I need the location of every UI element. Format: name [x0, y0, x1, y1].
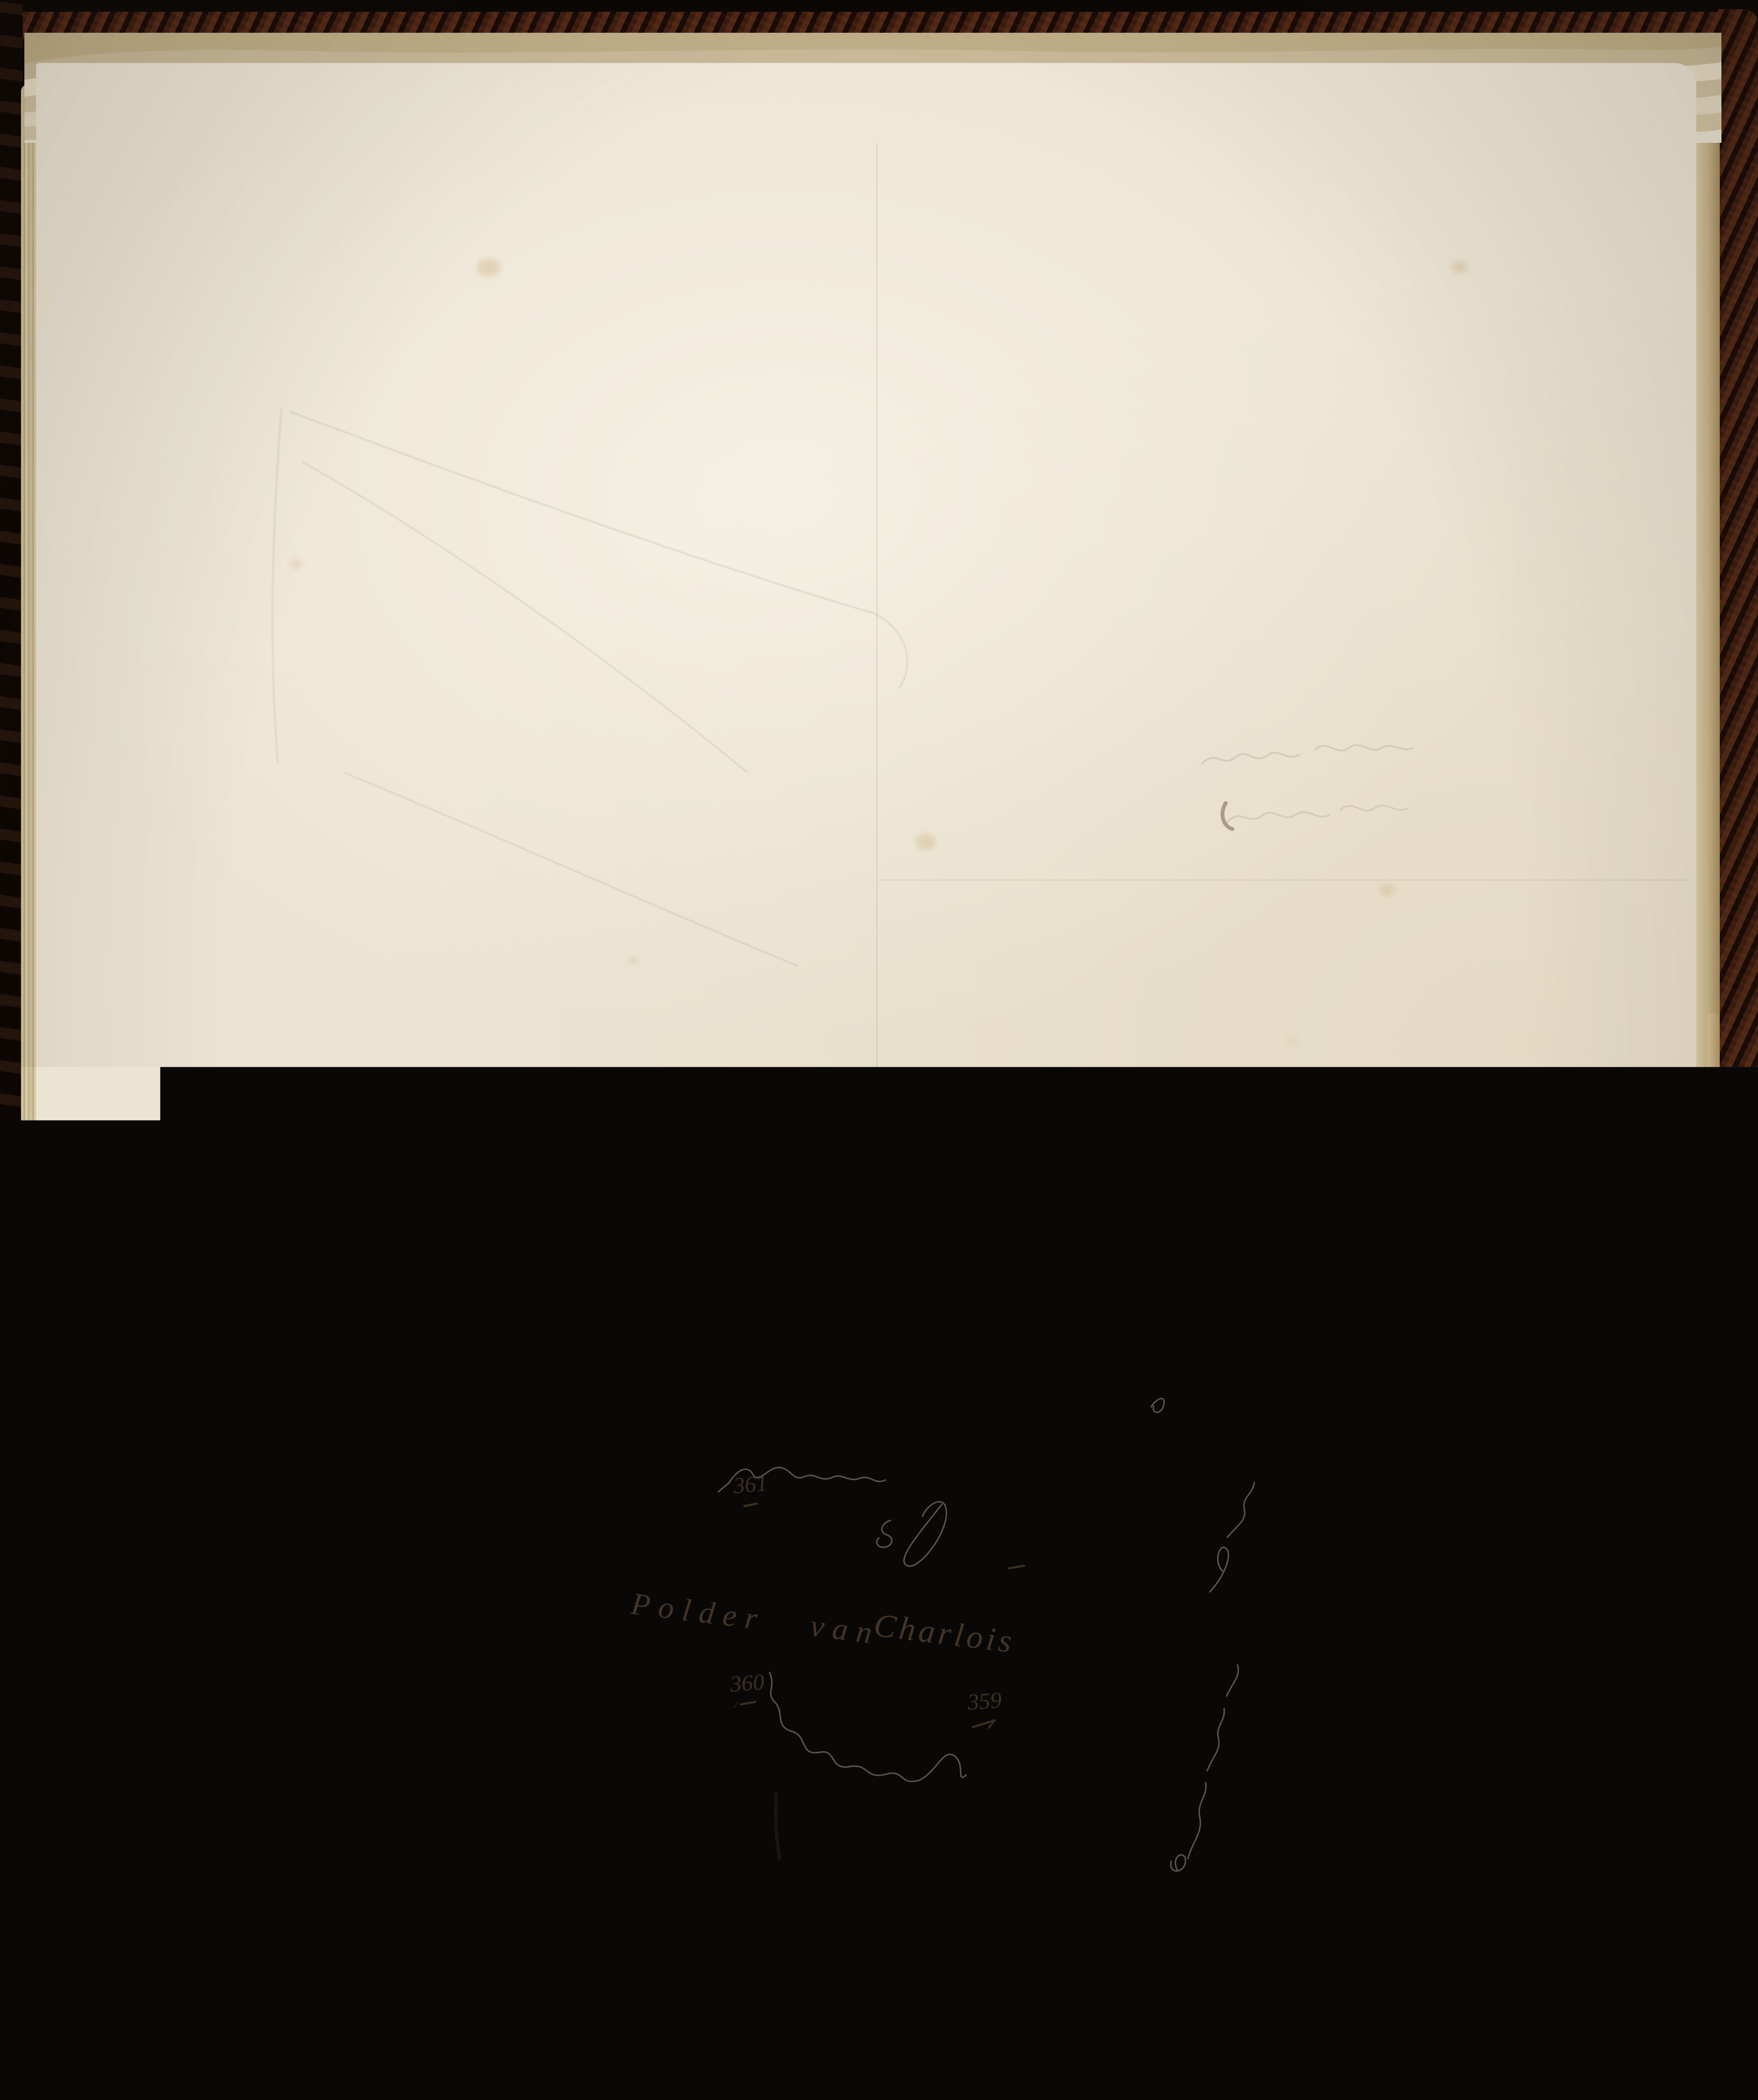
foxing-spot	[1380, 884, 1394, 896]
show-through-sketch	[218, 353, 1059, 991]
foxing-spot	[477, 258, 500, 277]
foxing-spot	[870, 2031, 884, 2042]
parcel-number: 362	[998, 1533, 1034, 1561]
water-strip-right	[1139, 1420, 1161, 1861]
foxing-spot	[1504, 1915, 1516, 1926]
foxing-spot	[233, 1709, 250, 1724]
foxing-spot	[1153, 1753, 1159, 1759]
page-title: Charlois	[117, 1191, 322, 1260]
water-canal	[518, 1403, 616, 1861]
crease-line	[878, 879, 1689, 881]
foxing-spot	[1288, 1037, 1297, 1045]
region-label: Polder van Charlois	[629, 1586, 1017, 1660]
parcel-number: 361	[732, 1470, 768, 1499]
page-deckle-edge	[1690, 1147, 1717, 2100]
parcel-number: 359	[966, 1687, 1002, 1715]
book-spine-shadow	[0, 0, 23, 2100]
region-label-left: Polder van	[629, 1586, 882, 1651]
parcel-numbers: 361 362 360 359	[729, 1470, 1034, 1728]
foxing-spot	[290, 559, 302, 570]
cadastral-map-drawing: 361 362 360 359 Polder van Charlois	[496, 1357, 1294, 1882]
foxing-spot	[269, 2060, 288, 2076]
foxing-spot	[628, 955, 639, 965]
book-photo: Charlois Sectie B. 1e Blad	[0, 0, 1758, 2100]
region-label-right: Charlois	[872, 1606, 1017, 1660]
parcel-number: 360	[729, 1669, 765, 1697]
show-through-script	[1176, 710, 1470, 853]
crease-line	[876, 143, 878, 1134]
foxing-spot	[916, 834, 936, 850]
foxing-spot	[1451, 260, 1467, 274]
arrow-fletching	[1557, 1396, 1608, 1550]
book-cover-right-edge	[1718, 9, 1758, 2100]
north-arrow-icon	[1510, 1128, 1636, 1560]
foxing-spot	[428, 1842, 439, 1851]
